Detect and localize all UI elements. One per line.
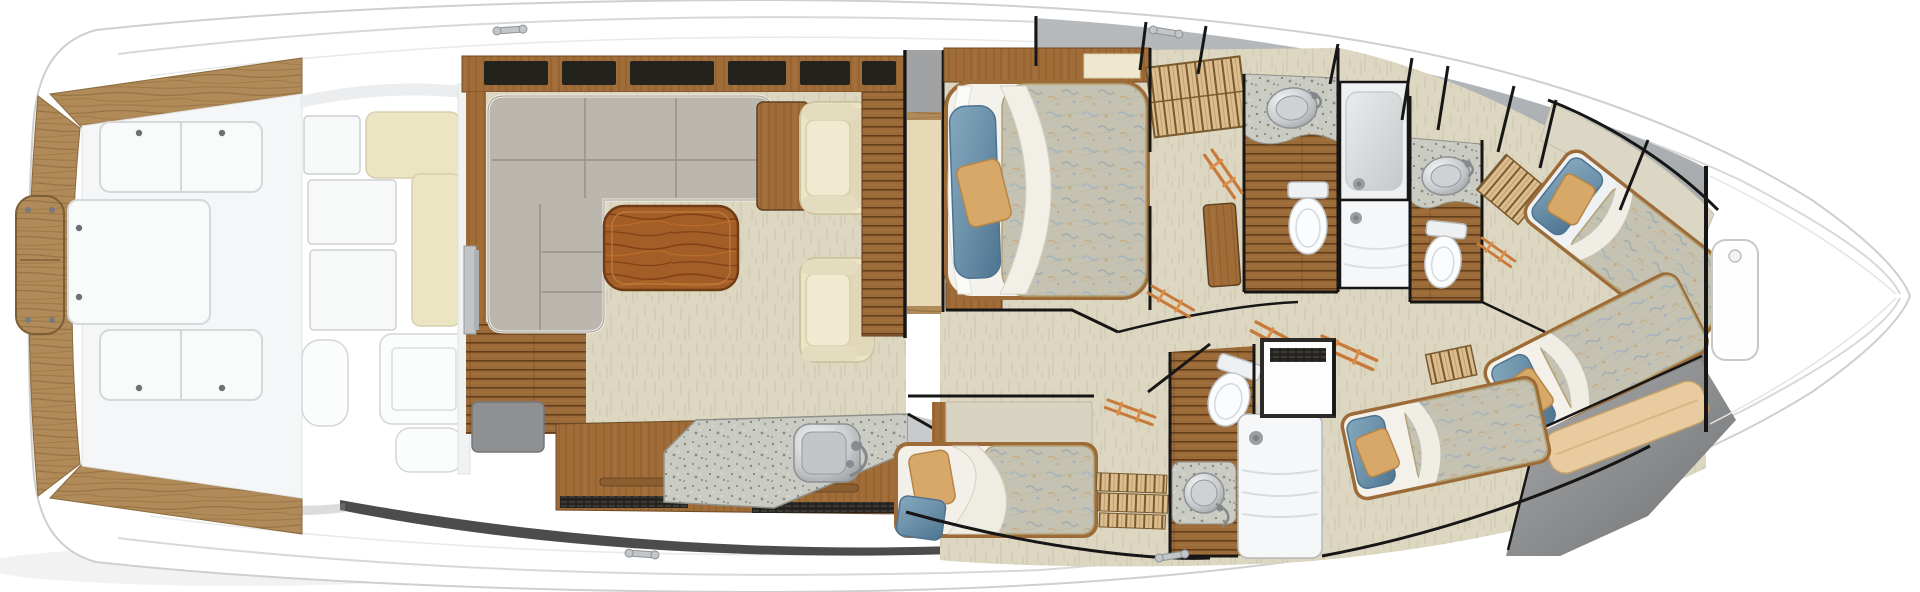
deck-hatch-aft-top xyxy=(100,122,262,192)
screw-icon xyxy=(136,130,142,136)
transom-door xyxy=(16,196,64,334)
yacht-floorplan xyxy=(0,0,1920,592)
screw-icon xyxy=(76,225,82,231)
deck-hatch-aft-bottom xyxy=(100,330,262,400)
galley-sink-icon xyxy=(794,424,866,482)
screw-icon xyxy=(136,385,142,391)
mezzanine-panel xyxy=(304,116,360,174)
blue-pillow-icon xyxy=(895,495,946,541)
mezzanine xyxy=(300,84,470,474)
salon xyxy=(462,50,943,452)
shower-stall-icon xyxy=(1340,82,1408,200)
shower-stalls xyxy=(1340,82,1412,288)
single-berth-icon xyxy=(895,444,1096,541)
bow-hatch-icon xyxy=(1712,240,1758,360)
toilet-icon xyxy=(1288,182,1328,254)
mezzanine-panel xyxy=(310,250,396,330)
coffee-table-icon xyxy=(604,206,738,290)
screw-icon xyxy=(219,130,225,136)
mezzanine-cushion xyxy=(366,112,460,178)
mezzanine-seat xyxy=(396,428,462,472)
bulkhead-panel-cream xyxy=(907,120,941,306)
master-head xyxy=(1244,48,1338,292)
louvered-locker-icon xyxy=(1146,56,1248,137)
bulkhead-panel-gray xyxy=(907,50,941,118)
appliance-cabinet xyxy=(1262,340,1334,416)
deck-hatch-center xyxy=(68,200,210,324)
floorplan-canvas xyxy=(0,0,1920,592)
mid-lower-head xyxy=(1148,340,1334,558)
cabin-door-leaf xyxy=(1203,203,1241,287)
cockpit xyxy=(16,58,302,534)
shower-stall-icon xyxy=(1238,414,1322,558)
galley-mat xyxy=(472,402,544,452)
companionway-steps-icon xyxy=(862,92,904,336)
double-berth-icon xyxy=(946,82,1148,298)
mezzanine-seat xyxy=(302,340,348,426)
salon-window-slots xyxy=(484,61,896,85)
mezzanine-panel xyxy=(308,180,396,244)
mezzanine-cushion xyxy=(412,174,460,326)
shower-stall-icon xyxy=(1340,200,1412,288)
screw-icon xyxy=(219,385,225,391)
companionway-steps-icon xyxy=(1095,473,1169,529)
berth-headboard-band xyxy=(946,402,1092,446)
screw-icon xyxy=(76,294,82,300)
